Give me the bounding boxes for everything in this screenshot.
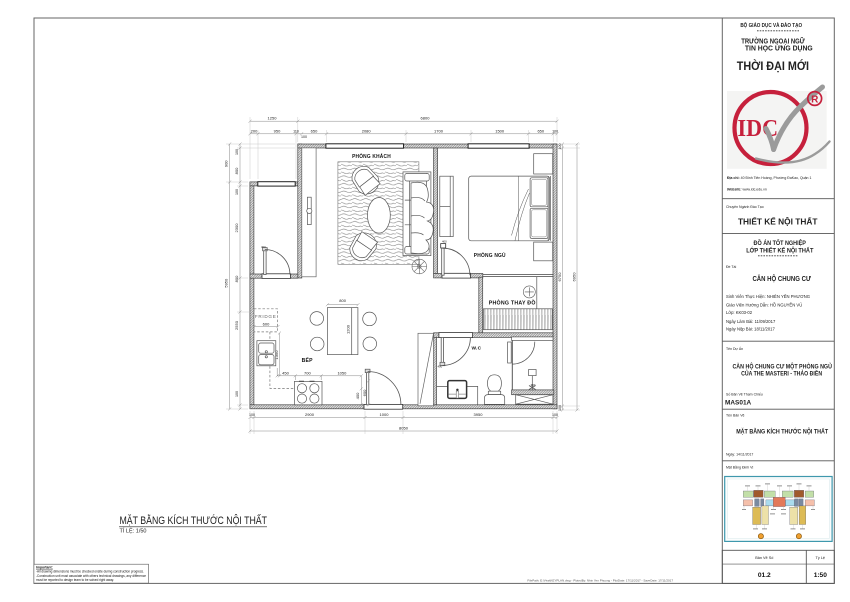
svg-text:450: 450 — [282, 370, 289, 375]
svg-text:ĐỒ ÁN TỐT NGHIỆP: ĐỒ ÁN TỐT NGHIỆP — [754, 239, 806, 247]
svg-text:1250: 1250 — [268, 116, 278, 121]
svg-text:MẶT BẰNG KÍCH THƯỚC NỘI THẤT: MẶT BẰNG KÍCH THƯỚC NỘI THẤT — [120, 514, 268, 527]
svg-text:BẾP: BẾP — [302, 357, 313, 364]
svg-text:6800: 6800 — [421, 116, 431, 121]
svg-text:Sinh Viên Thực Hiện: NHIÊN YẾN: Sinh Viên Thực Hiện: NHIÊN YẾN PHƯƠNG — [726, 294, 810, 299]
svg-text:100: 100 — [558, 144, 562, 150]
svg-text:100: 100 — [235, 189, 239, 195]
svg-text:TIN HỌC ỨNG DỤNG: TIN HỌC ỨNG DỤNG — [745, 43, 813, 52]
svg-text:THIẾT KẾ NỘI THẤT: THIẾT KẾ NỘI THẤT — [738, 215, 818, 226]
svg-text:CĂN HỘ CHUNG CƯ MỘT PHÒNG NGỦ: CĂN HỘ CHUNG CƯ MỘT PHÒNG NGỦ — [732, 363, 832, 371]
svg-text:CĂN HỘ CHUNG CƯ: CĂN HỘ CHUNG CƯ — [752, 274, 811, 283]
svg-text:1200: 1200 — [346, 324, 351, 334]
svg-text:Website: www.idc.edu.vn: Website: www.idc.edu.vn — [727, 187, 767, 191]
svg-text:CỦA THE MASTERI - THẢO ĐIỀN: CỦA THE MASTERI - THẢO ĐIỀN — [741, 371, 822, 378]
svg-text:100: 100 — [235, 149, 239, 155]
svg-text:THỜI ĐẠI MỚI: THỜI ĐẠI MỚI — [737, 58, 809, 73]
svg-text:950: 950 — [274, 128, 281, 133]
svg-text:200: 200 — [251, 128, 258, 133]
svg-text:LỚP THIẾT KẾ NỘI THẤT: LỚP THIẾT KẾ NỘI THẤT — [746, 246, 814, 254]
svg-text:800: 800 — [234, 275, 239, 282]
svg-text:Đề Tài: Đề Tài — [726, 265, 736, 269]
svg-text:Số Bản Vẽ Tham Chiếu: Số Bản Vẽ Tham Chiếu — [726, 392, 763, 396]
svg-text:MAS01A: MAS01A — [725, 400, 751, 407]
svg-text:1700: 1700 — [434, 128, 444, 133]
svg-text:PHÒNG THAY ĐỒ: PHÒNG THAY ĐỒ — [489, 298, 536, 306]
svg-text:110: 110 — [293, 129, 299, 133]
svg-text:2900: 2900 — [305, 412, 315, 417]
svg-text:100: 100 — [552, 413, 558, 417]
svg-text:Giáo Viên Hướng Dẫn: HỒ NGUYỄN: Giáo Viên Hướng Dẫn: HỒ NGUYỄN VŨ — [726, 302, 802, 307]
svg-text:1350: 1350 — [274, 350, 279, 360]
svg-text:1:50: 1:50 — [814, 572, 828, 579]
svg-text:Mặt Bằng Định Vị: Mặt Bằng Định Vị — [726, 464, 753, 469]
svg-text:600: 600 — [362, 389, 367, 396]
svg-text:TỈ LỆ: 1/50: TỈ LỆ: 1/50 — [120, 527, 147, 535]
svg-text:FilePath: E:\Viva\KEYPLAN.dwg: FilePath: E:\Viva\KEYPLAN.dwg - PlotedBy… — [527, 579, 673, 583]
svg-text:360: 360 — [531, 383, 536, 387]
svg-text:5950: 5950 — [224, 278, 229, 288]
svg-text:1500: 1500 — [495, 128, 505, 133]
svg-text:100: 100 — [552, 129, 558, 133]
svg-text:2300: 2300 — [234, 223, 239, 233]
svg-text:Lớp: KK03-02: Lớp: KK03-02 — [726, 310, 753, 315]
svg-text:Ngày Làm Bài: 11/09/2017: Ngày Làm Bài: 11/09/2017 — [726, 319, 776, 324]
svg-text:8050: 8050 — [399, 426, 409, 431]
svg-text:400: 400 — [355, 392, 360, 399]
svg-text:1000: 1000 — [380, 412, 390, 417]
svg-text:PHÒNG KHÁCH: PHÒNG KHÁCH — [352, 152, 391, 160]
svg-text:2080: 2080 — [362, 128, 372, 133]
svg-text:100: 100 — [558, 405, 562, 411]
svg-text:100: 100 — [235, 391, 239, 397]
svg-text:650: 650 — [537, 128, 544, 133]
svg-text:BỘ GIÁO DỤC VÀ ĐÀO TẠO: BỘ GIÁO DỤC VÀ ĐÀO TẠO — [740, 21, 802, 29]
svg-text:Ngày: 14/11/2017: Ngày: 14/11/2017 — [726, 453, 753, 457]
svg-text:3950: 3950 — [474, 412, 484, 417]
svg-text:TRƯỜNG NGOẠI NGỮ: TRƯỜNG NGOẠI NGỮ — [741, 36, 805, 45]
svg-text:100: 100 — [301, 135, 307, 139]
svg-text:2550: 2550 — [234, 320, 239, 330]
svg-text:Tên Dự Án: Tên Dự Án — [726, 347, 743, 351]
svg-text:800: 800 — [234, 167, 239, 174]
svg-text:100: 100 — [249, 413, 255, 417]
svg-text:700: 700 — [304, 370, 311, 375]
svg-text:400: 400 — [261, 245, 266, 249]
svg-text:650: 650 — [311, 128, 318, 133]
svg-text:01.2: 01.2 — [758, 572, 771, 579]
svg-text:6750: 6750 — [557, 272, 562, 282]
svg-text:Địa chỉ: 40 Đinh Tiên Hoàng, P: Địa chỉ: 40 Đinh Tiên Hoàng, Phường ĐaKa… — [727, 176, 811, 180]
svg-text:Tên Bản Vẽ: Tên Bản Vẽ — [726, 414, 745, 418]
svg-text:800: 800 — [339, 298, 346, 303]
svg-text:1050: 1050 — [337, 370, 347, 375]
svg-text:Tỷ Lệ: Tỷ Lệ — [816, 556, 826, 560]
svg-text:must be reported to design tea: must be reported to design team to be so… — [36, 578, 114, 582]
svg-text:R: R — [811, 94, 819, 105]
svg-text:W.C: W.C — [471, 346, 481, 352]
svg-text:400: 400 — [442, 240, 447, 244]
svg-text:6950: 6950 — [572, 272, 577, 282]
svg-text:PHÒNG NGỦ: PHÒNG NGỦ — [474, 251, 506, 259]
svg-text:Ngày Nộp Bài: 18/11/2017: Ngày Nộp Bài: 18/11/2017 — [726, 327, 775, 332]
svg-text:600: 600 — [263, 321, 270, 326]
svg-text:900: 900 — [224, 160, 229, 167]
svg-text:Chuyên Ngành Đào Tạo: Chuyên Ngành Đào Tạo — [726, 205, 764, 209]
svg-text:FRIDGE: FRIDGE — [255, 314, 277, 319]
svg-text:Bản Vẽ Số: Bản Vẽ Số — [755, 556, 774, 560]
svg-text:400: 400 — [437, 365, 442, 369]
